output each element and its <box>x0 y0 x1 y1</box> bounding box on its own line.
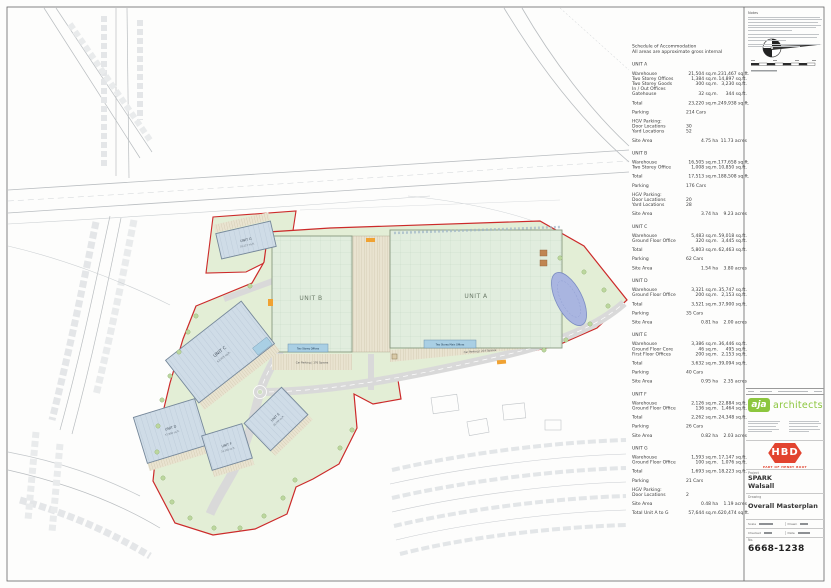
drawing-number-label: No. <box>748 538 805 542</box>
service-yard <box>352 236 390 352</box>
schedule-group: HGV Parking:Door Locations2 <box>632 487 748 497</box>
schedule-group: Parking214 Cars <box>632 110 748 115</box>
schedule-group: Parking26 Cars <box>632 424 748 429</box>
schedule-row: Gatehouse32 sq.m.344 sq.ft. <box>632 92 748 97</box>
schedule-row: Parking35 Cars <box>632 311 748 316</box>
title-block: Notes aja architects HBD PART OF HENRY B… <box>746 0 825 588</box>
schedule-row: Total23,220 sq.m.249,938 sq.ft. <box>632 101 748 106</box>
schedule-row: Site Area3.74 ha9.23 acres <box>632 212 748 217</box>
drawing-number-section: No. 6668-1238 <box>748 538 805 554</box>
schedule-unit-heading: UNIT G <box>632 446 748 451</box>
schedule-row: Total5,803 sq.m.62,463 sq.ft. <box>632 248 748 253</box>
schedule-group: Site Area0.48 ha1.19 acres <box>632 502 748 507</box>
schedule-group: Site Area0.82 ha2.03 acres <box>632 433 748 438</box>
project-section: Project SPARK Walsall <box>748 471 774 490</box>
unit-a-label: UNIT A <box>464 293 488 300</box>
schedule-row: Site Area0.81 ha2.00 acres <box>632 320 748 325</box>
schedule-row: Ground Floor Office100 sq.m.1,076 sq.ft. <box>632 460 748 465</box>
drawn-field-label: Drawn <box>788 522 798 526</box>
unit-b-label: UNIT B <box>299 295 322 302</box>
schedule-row: Total3,632 sq.m.39,094 sq.ft. <box>632 361 748 366</box>
schedule-group: Site Area4.75 ha11.73 acres <box>632 138 748 143</box>
schedule-row: First Floor Offices200 sq.m.2,153 sq.ft. <box>632 352 748 357</box>
schedule-group: Parking176 Cars <box>632 183 748 188</box>
schedule-group: Total17,513 sq.m.188,508 sq.ft. <box>632 174 748 179</box>
date-field-label: Date <box>788 531 795 535</box>
schedule-unit-heading: UNIT D <box>632 278 748 283</box>
schedule-group: Warehouse3,321 sq.m.35,747 sq.ft.Ground … <box>632 288 748 298</box>
notes-label: Notes <box>748 11 822 15</box>
schedule-of-accommodation: Schedule of Accommodation All areas are … <box>632 44 748 520</box>
schedule-row: Ground Floor Office320 sq.m.3,445 sq.ft. <box>632 239 748 244</box>
schedule-group: Total1,693 sq.m.18,223 sq.ft. <box>632 469 748 474</box>
schedule-group: Warehouse16,505 sq.m.177,658 sq.ft.Two S… <box>632 160 748 170</box>
schedule-row: Total Unit A to G57,644 sq.m.620,474 sq.… <box>632 511 748 516</box>
schedule-subtitle: All areas are approximate gross internal <box>632 50 748 55</box>
schedule-group: HGV Parking:Door Locations30Yard Locatio… <box>632 119 748 134</box>
schedule-row: Site Area0.95 ha2.35 acres <box>632 379 748 384</box>
schedule-group: Site Area0.81 ha2.00 acres <box>632 320 748 325</box>
schedule-row: Ground Floor Office200 sq.m.2,153 sq.ft. <box>632 293 748 298</box>
schedule-group: Total23,220 sq.m.249,938 sq.ft. <box>632 101 748 106</box>
schedule-unit-heading: UNIT A <box>632 62 748 67</box>
schedule-group: Total3,521 sq.m.37,900 sq.ft. <box>632 302 748 307</box>
unit-a-building <box>390 230 562 348</box>
schedule-row: Total3,521 sq.m.37,900 sq.ft. <box>632 302 748 307</box>
unit-b-offices-label: Two Storey Offices <box>297 348 320 351</box>
schedule-group: Total2,262 sq.m.24,348 sq.ft. <box>632 415 748 420</box>
project-name-line2: Walsall <box>748 483 774 491</box>
drawing-section: Drawing Overall Masterplan <box>748 495 818 510</box>
schedule-row: Two Storey Office1,008 sq.m.10,850 sq.ft… <box>632 165 748 170</box>
schedule-unit-heading: UNIT F <box>632 392 748 397</box>
schedule-group: Warehouse3,386 sq.m.36,446 sq.ft.Ground … <box>632 342 748 357</box>
schedule-group: HGV Parking:Door Locations20Yard Locatio… <box>632 192 748 207</box>
schedule-unit-heading: UNIT E <box>632 333 748 338</box>
schedule-group: Parking35 Cars <box>632 311 748 316</box>
checked-field-label: Checked <box>748 531 761 535</box>
schedule-group: Total Unit A to G57,644 sq.m.620,474 sq.… <box>632 511 748 516</box>
revision-strip <box>746 388 824 395</box>
schedule-row: Total1,693 sq.m.18,223 sq.ft. <box>632 469 748 474</box>
schedule-group: Parking62 Cars <box>632 257 748 262</box>
schedule-group: Parking21 Cars <box>632 478 748 483</box>
schedule-row: Ground Floor Office136 sq.m.1,464 sq.ft. <box>632 406 748 411</box>
schedule-group: Total5,803 sq.m.62,463 sq.ft. <box>632 248 748 253</box>
schedule-row: Site Area4.75 ha11.73 acres <box>632 138 748 143</box>
schedule-row: Parking26 Cars <box>632 424 748 429</box>
schedule-row: Parking62 Cars <box>632 257 748 262</box>
drawing-number: 6668-1238 <box>748 544 805 554</box>
schedule-row: Parking40 Cars <box>632 370 748 375</box>
schedule-row: Door Locations2 <box>632 492 748 497</box>
drawing-fields: Scale Drawn Checked Date <box>746 519 824 538</box>
hbd-logo-icon: HBD <box>764 443 806 463</box>
scale-field-label: Scale <box>748 522 756 526</box>
schedule-group: Total3,632 sq.m.39,094 sq.ft. <box>632 361 748 366</box>
schedule-group: Site Area3.74 ha9.23 acres <box>632 212 748 217</box>
aja-logo-icon: aja <box>748 398 770 412</box>
architect-name: architects <box>773 400 823 411</box>
schedule-row: Yard Locations52 <box>632 129 748 134</box>
developer-logo: HBD PART OF HENRY BOOT <box>746 443 824 469</box>
drawing-label: Drawing <box>748 495 818 499</box>
architect-address <box>748 419 822 434</box>
schedule-row: Total17,513 sq.m.188,508 sq.ft. <box>632 174 748 179</box>
schedule-row: Parking214 Cars <box>632 110 748 115</box>
schedule-row: Total2,262 sq.m.24,348 sq.ft. <box>632 415 748 420</box>
schedule-group: Site Area1.54 ha3.80 acres <box>632 266 748 271</box>
car-park-b-label: Car Parking | 176 Spaces <box>296 361 329 365</box>
schedule-group: Site Area0.95 ha2.35 acres <box>632 379 748 384</box>
schedule-group: Warehouse2,126 sq.m.22,884 sq.ft.Ground … <box>632 401 748 411</box>
unit-a-offices-label: Two Storey Main Offices <box>436 344 465 347</box>
schedule-group: Warehouse21,504 sq.m.231,467 sq.ft.Two S… <box>632 71 748 97</box>
schedule-group: Warehouse1,593 sq.m.17,147 sq.ft.Ground … <box>632 455 748 465</box>
architect-logo: aja architects <box>748 398 823 412</box>
unit-b-building <box>272 236 352 352</box>
schedule-group: Parking40 Cars <box>632 370 748 375</box>
notes-section: Notes <box>748 11 822 49</box>
schedule-row: Site Area1.54 ha3.80 acres <box>632 266 748 271</box>
schedule-row: Parking21 Cars <box>632 478 748 483</box>
gatehouse <box>392 354 397 359</box>
schedule-unit-heading: UNIT B <box>632 151 748 156</box>
schedule-group: Warehouse5,483 sq.m.59,018 sq.ft.Ground … <box>632 233 748 243</box>
schedule-sections: UNIT AWarehouse21,504 sq.m.231,467 sq.ft… <box>632 62 748 516</box>
schedule-row: Site Area0.48 ha1.19 acres <box>632 502 748 507</box>
schedule-unit-heading: UNIT C <box>632 224 748 229</box>
schedule-title: Schedule of Accommodation <box>632 44 748 49</box>
schedule-row: Yard Locations28 <box>632 203 748 208</box>
drawing-title: Overall Masterplan <box>748 502 818 510</box>
schedule-row: Parking176 Cars <box>632 183 748 188</box>
drawing-sheet: UNIT B UNIT A UNIT C 62,463 sq.ft. UNIT … <box>0 0 831 588</box>
schedule-row: Site Area0.82 ha2.03 acres <box>632 433 748 438</box>
